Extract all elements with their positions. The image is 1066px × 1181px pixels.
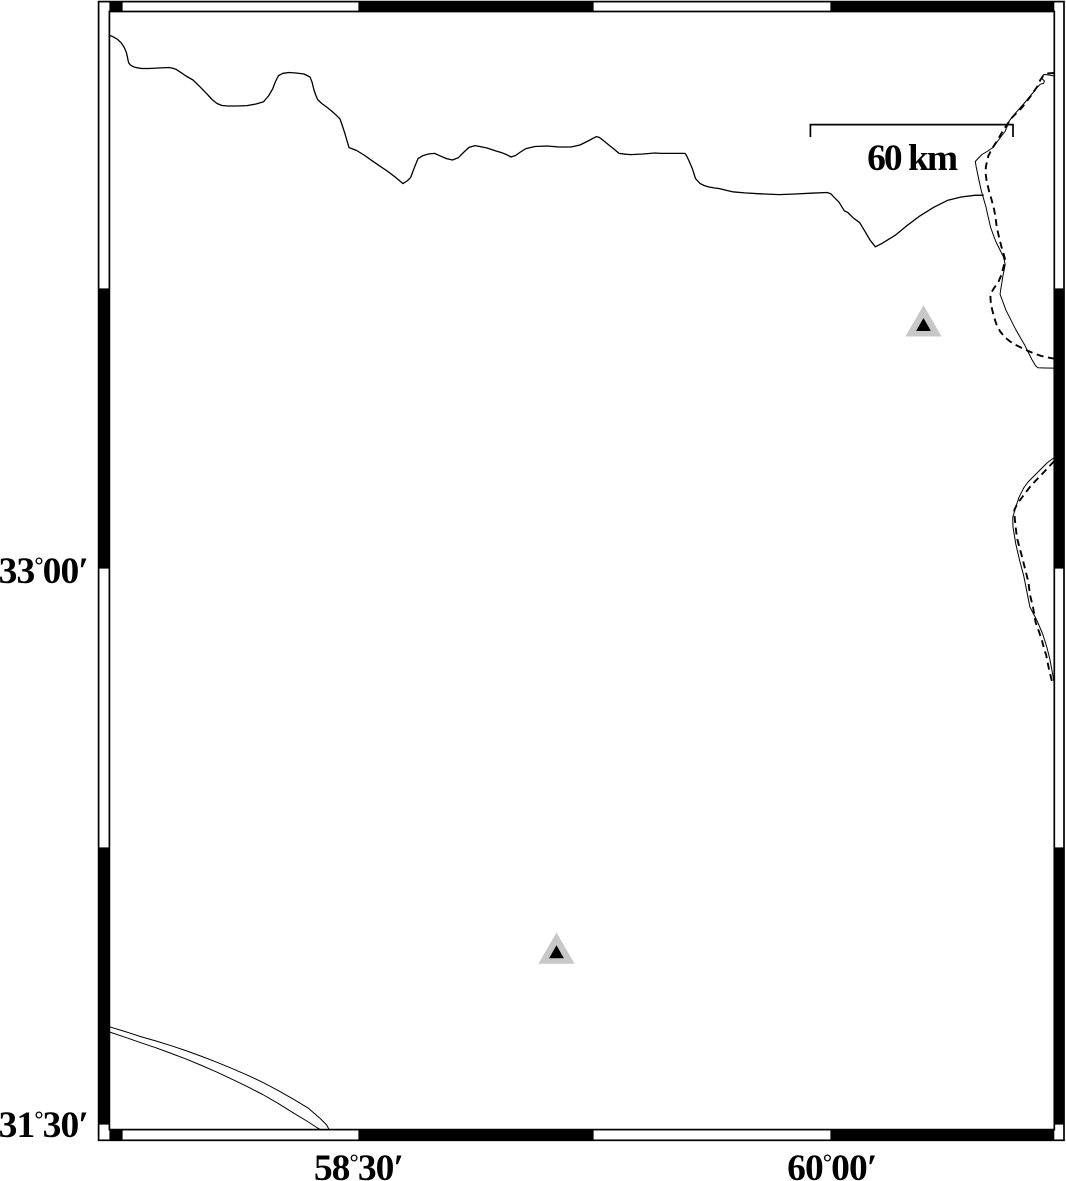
svg-text:60°00′: 60°00′ [787, 1148, 876, 1181]
svg-text:31°30′: 31°30′ [0, 1105, 88, 1146]
svg-text:33°00′: 33°00′ [0, 551, 88, 592]
svg-text:58°30′: 58°30′ [314, 1148, 403, 1181]
svg-text:60 km: 60 km [867, 138, 958, 179]
